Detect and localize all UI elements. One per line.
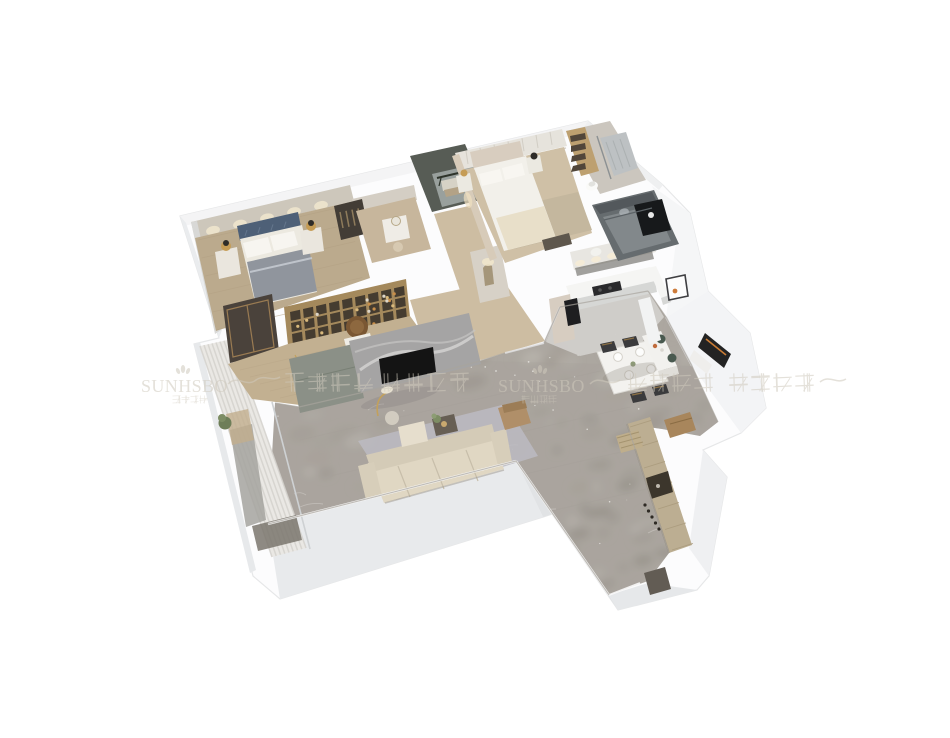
svg-text:SUNHSBO: SUNHSBO — [141, 376, 228, 396]
svg-text:SUNHSBO: SUNHSBO — [498, 376, 585, 396]
